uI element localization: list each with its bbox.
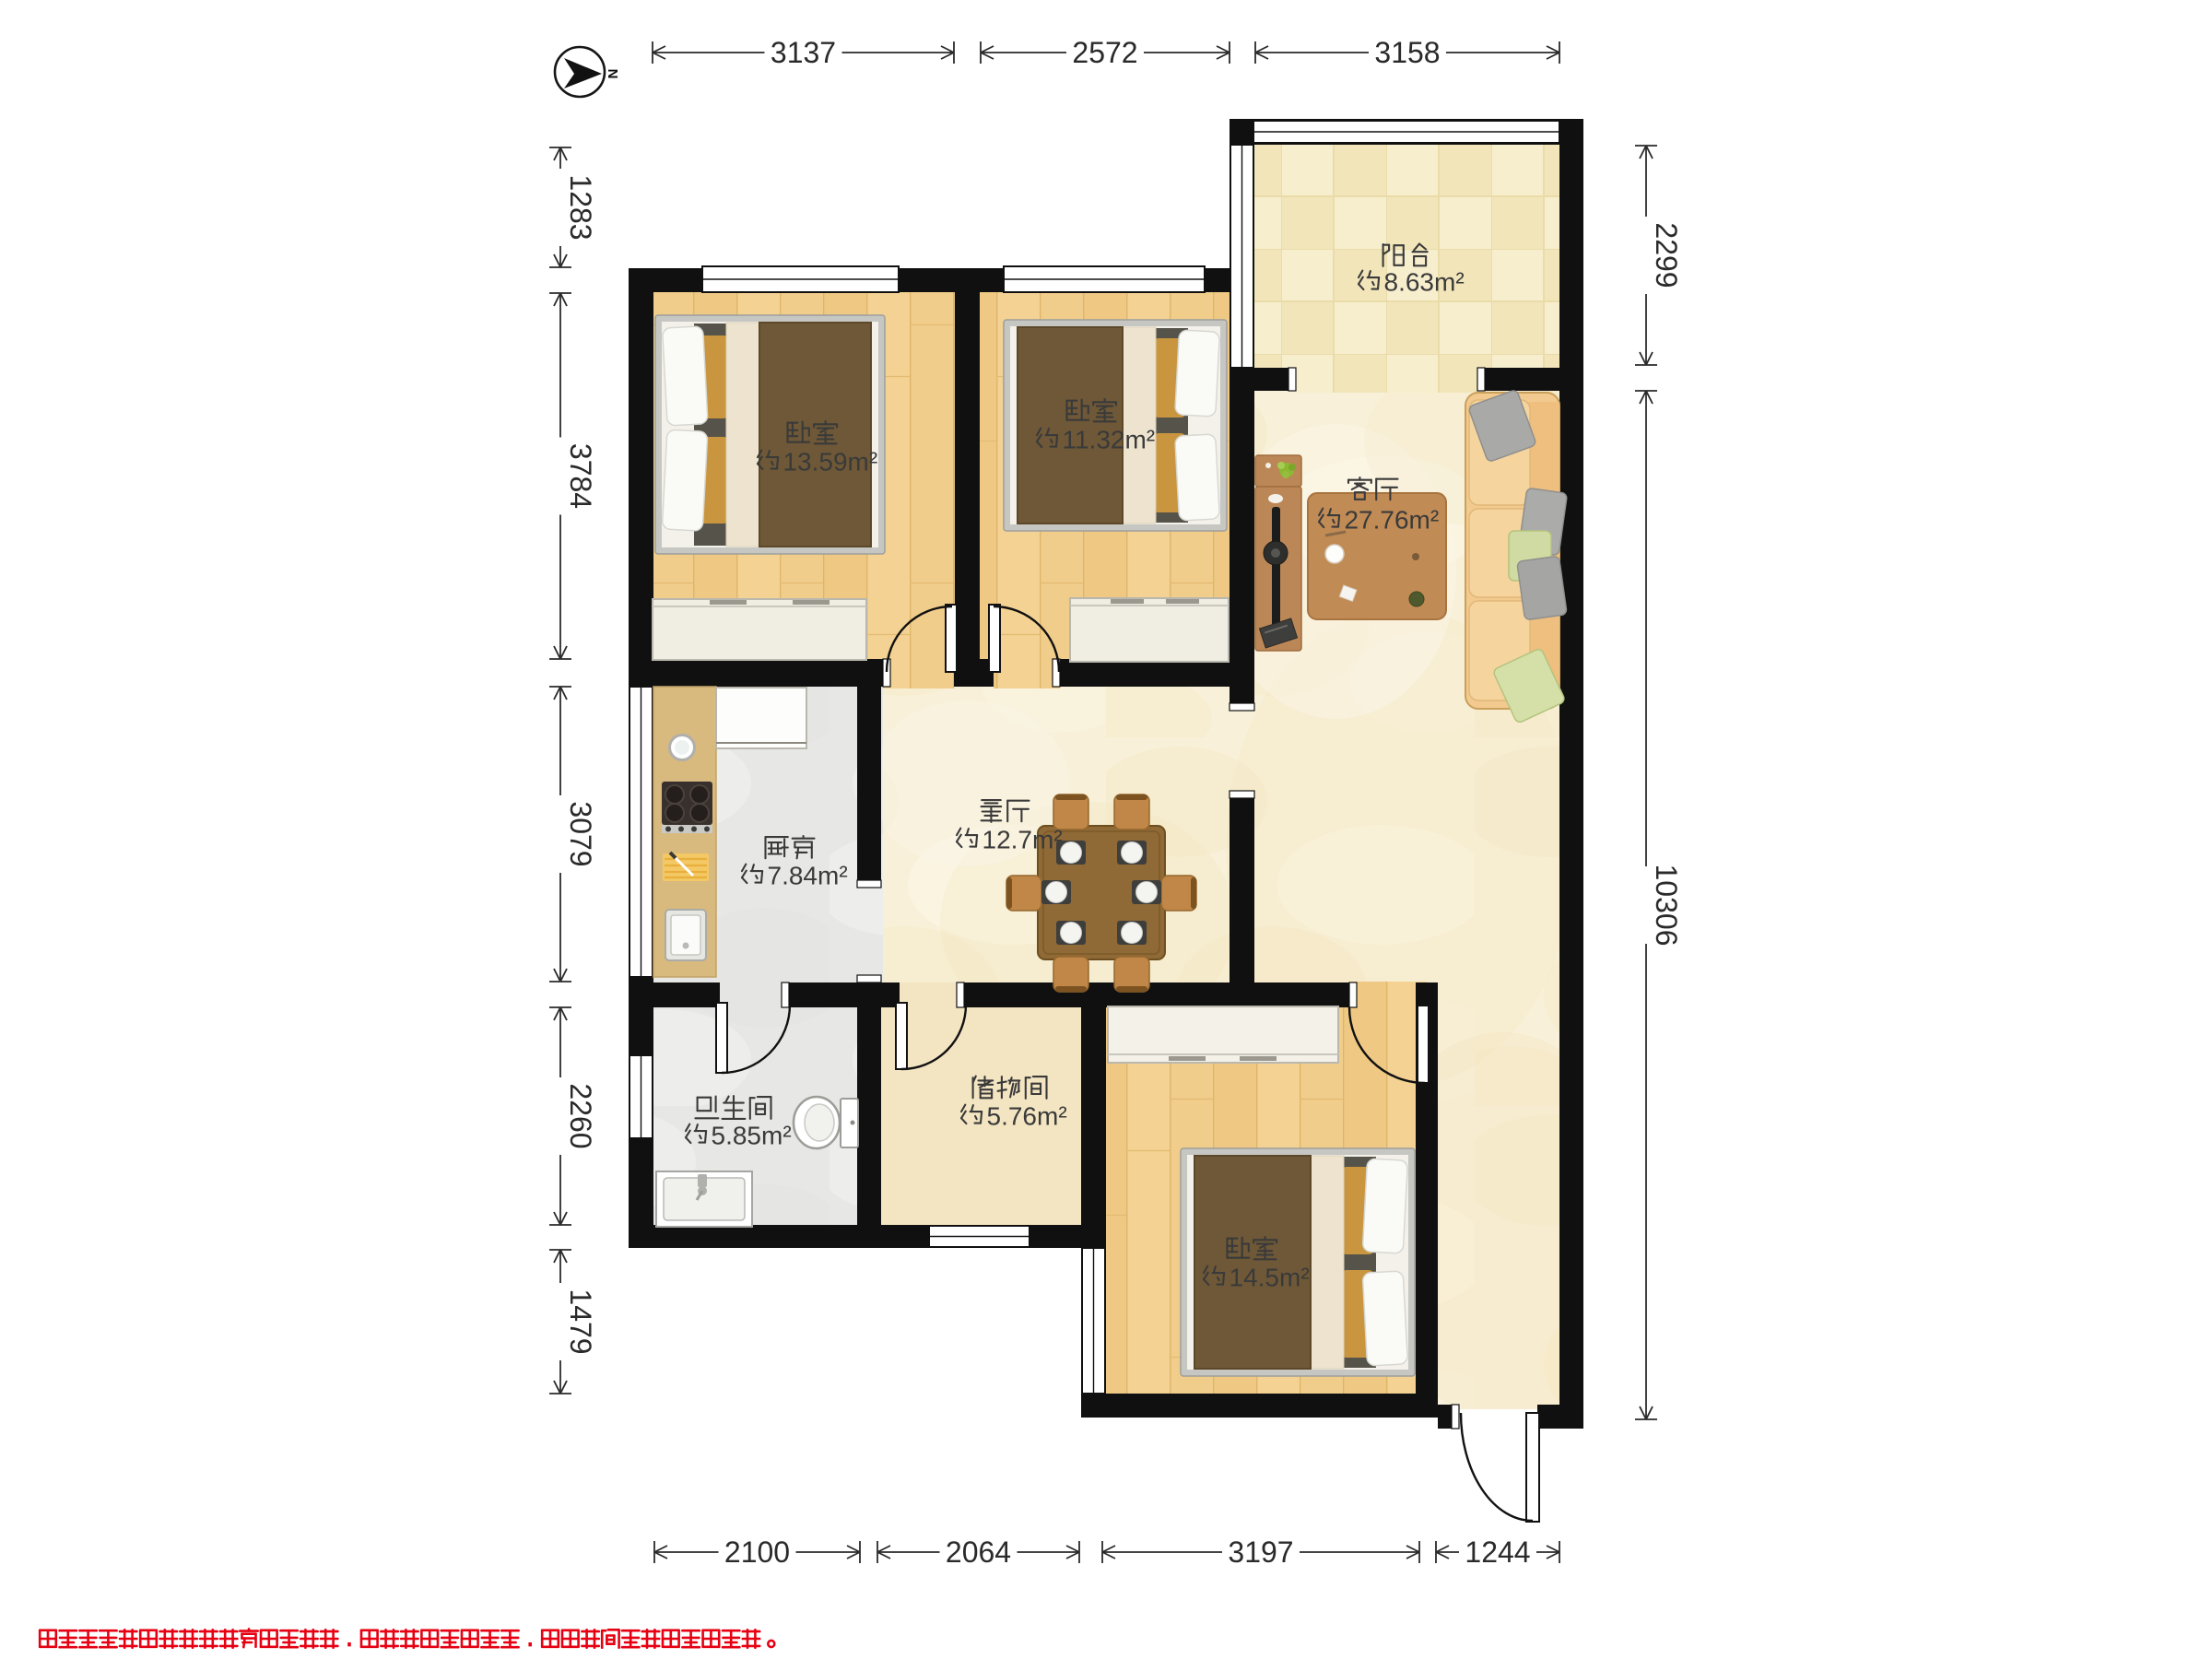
svg-text:2260: 2260 bbox=[564, 1083, 597, 1148]
svg-text:1283: 1283 bbox=[564, 174, 597, 240]
svg-text:3197: 3197 bbox=[1228, 1535, 1293, 1569]
svg-text:3784: 3784 bbox=[564, 443, 597, 509]
svg-text:2572: 2572 bbox=[1072, 36, 1137, 69]
svg-text:1244: 1244 bbox=[1465, 1535, 1530, 1569]
svg-text:11.32m²: 11.32m² bbox=[1062, 426, 1155, 454]
svg-text:10306: 10306 bbox=[1650, 865, 1683, 947]
svg-text:3079: 3079 bbox=[564, 801, 597, 866]
svg-text:5.85m²: 5.85m² bbox=[712, 1122, 792, 1150]
svg-text:5.76m²: 5.76m² bbox=[987, 1102, 1067, 1131]
svg-text:13.59m²: 13.59m² bbox=[782, 448, 877, 477]
svg-text:N: N bbox=[605, 69, 620, 79]
svg-text:1479: 1479 bbox=[564, 1288, 597, 1354]
svg-text:2299: 2299 bbox=[1650, 222, 1683, 288]
svg-text:3158: 3158 bbox=[1374, 36, 1440, 69]
svg-text:12.7m²: 12.7m² bbox=[982, 826, 1063, 854]
svg-text:2100: 2100 bbox=[724, 1535, 790, 1569]
svg-text:7.84m²: 7.84m² bbox=[768, 862, 848, 890]
svg-text:2064: 2064 bbox=[946, 1535, 1011, 1569]
svg-text:14.5m²: 14.5m² bbox=[1230, 1264, 1310, 1292]
svg-text:27.76m²: 27.76m² bbox=[1344, 506, 1439, 535]
svg-text:8.63m²: 8.63m² bbox=[1384, 268, 1465, 297]
svg-text:3137: 3137 bbox=[771, 36, 836, 69]
